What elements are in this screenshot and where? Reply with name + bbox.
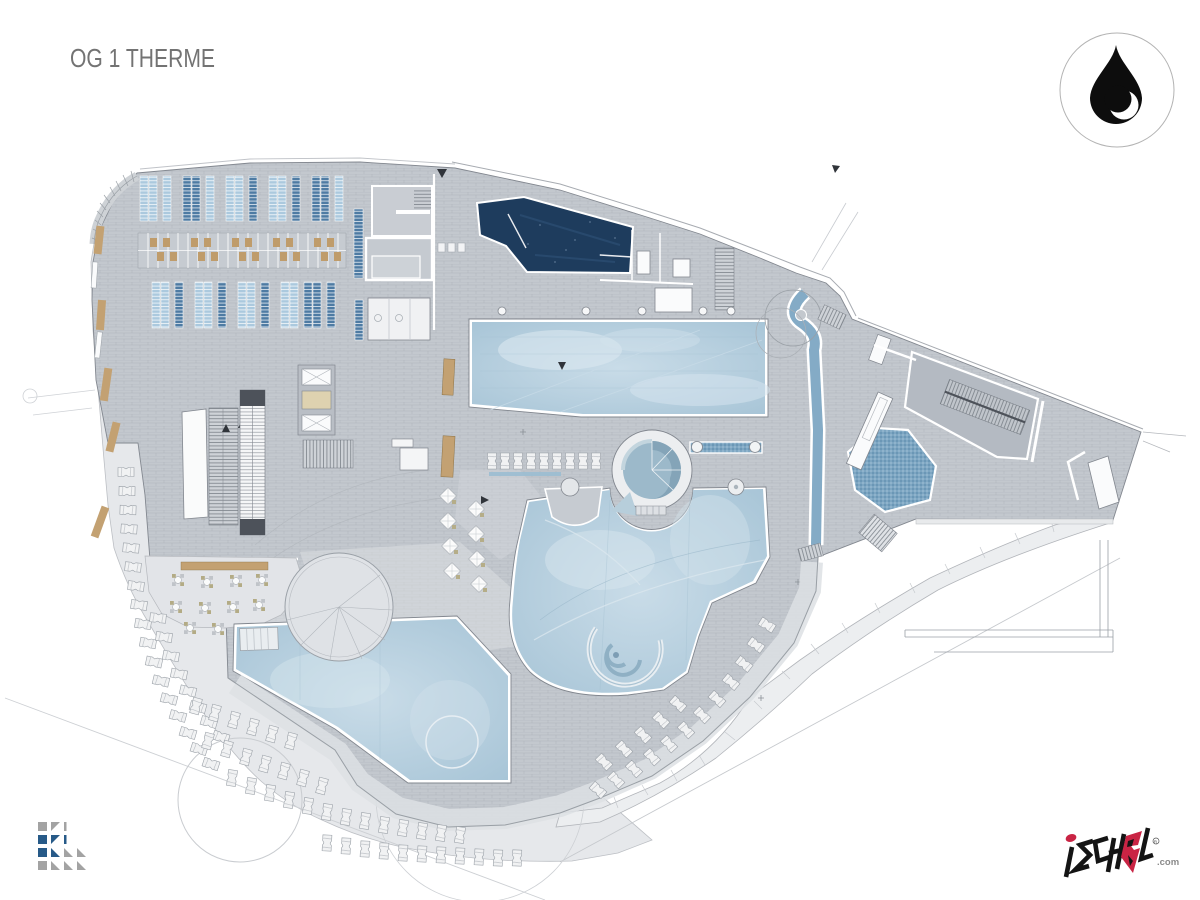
svg-text:.com: .com bbox=[1157, 857, 1179, 868]
svg-text:OG 1 THERME: OG 1 THERME bbox=[70, 45, 215, 73]
